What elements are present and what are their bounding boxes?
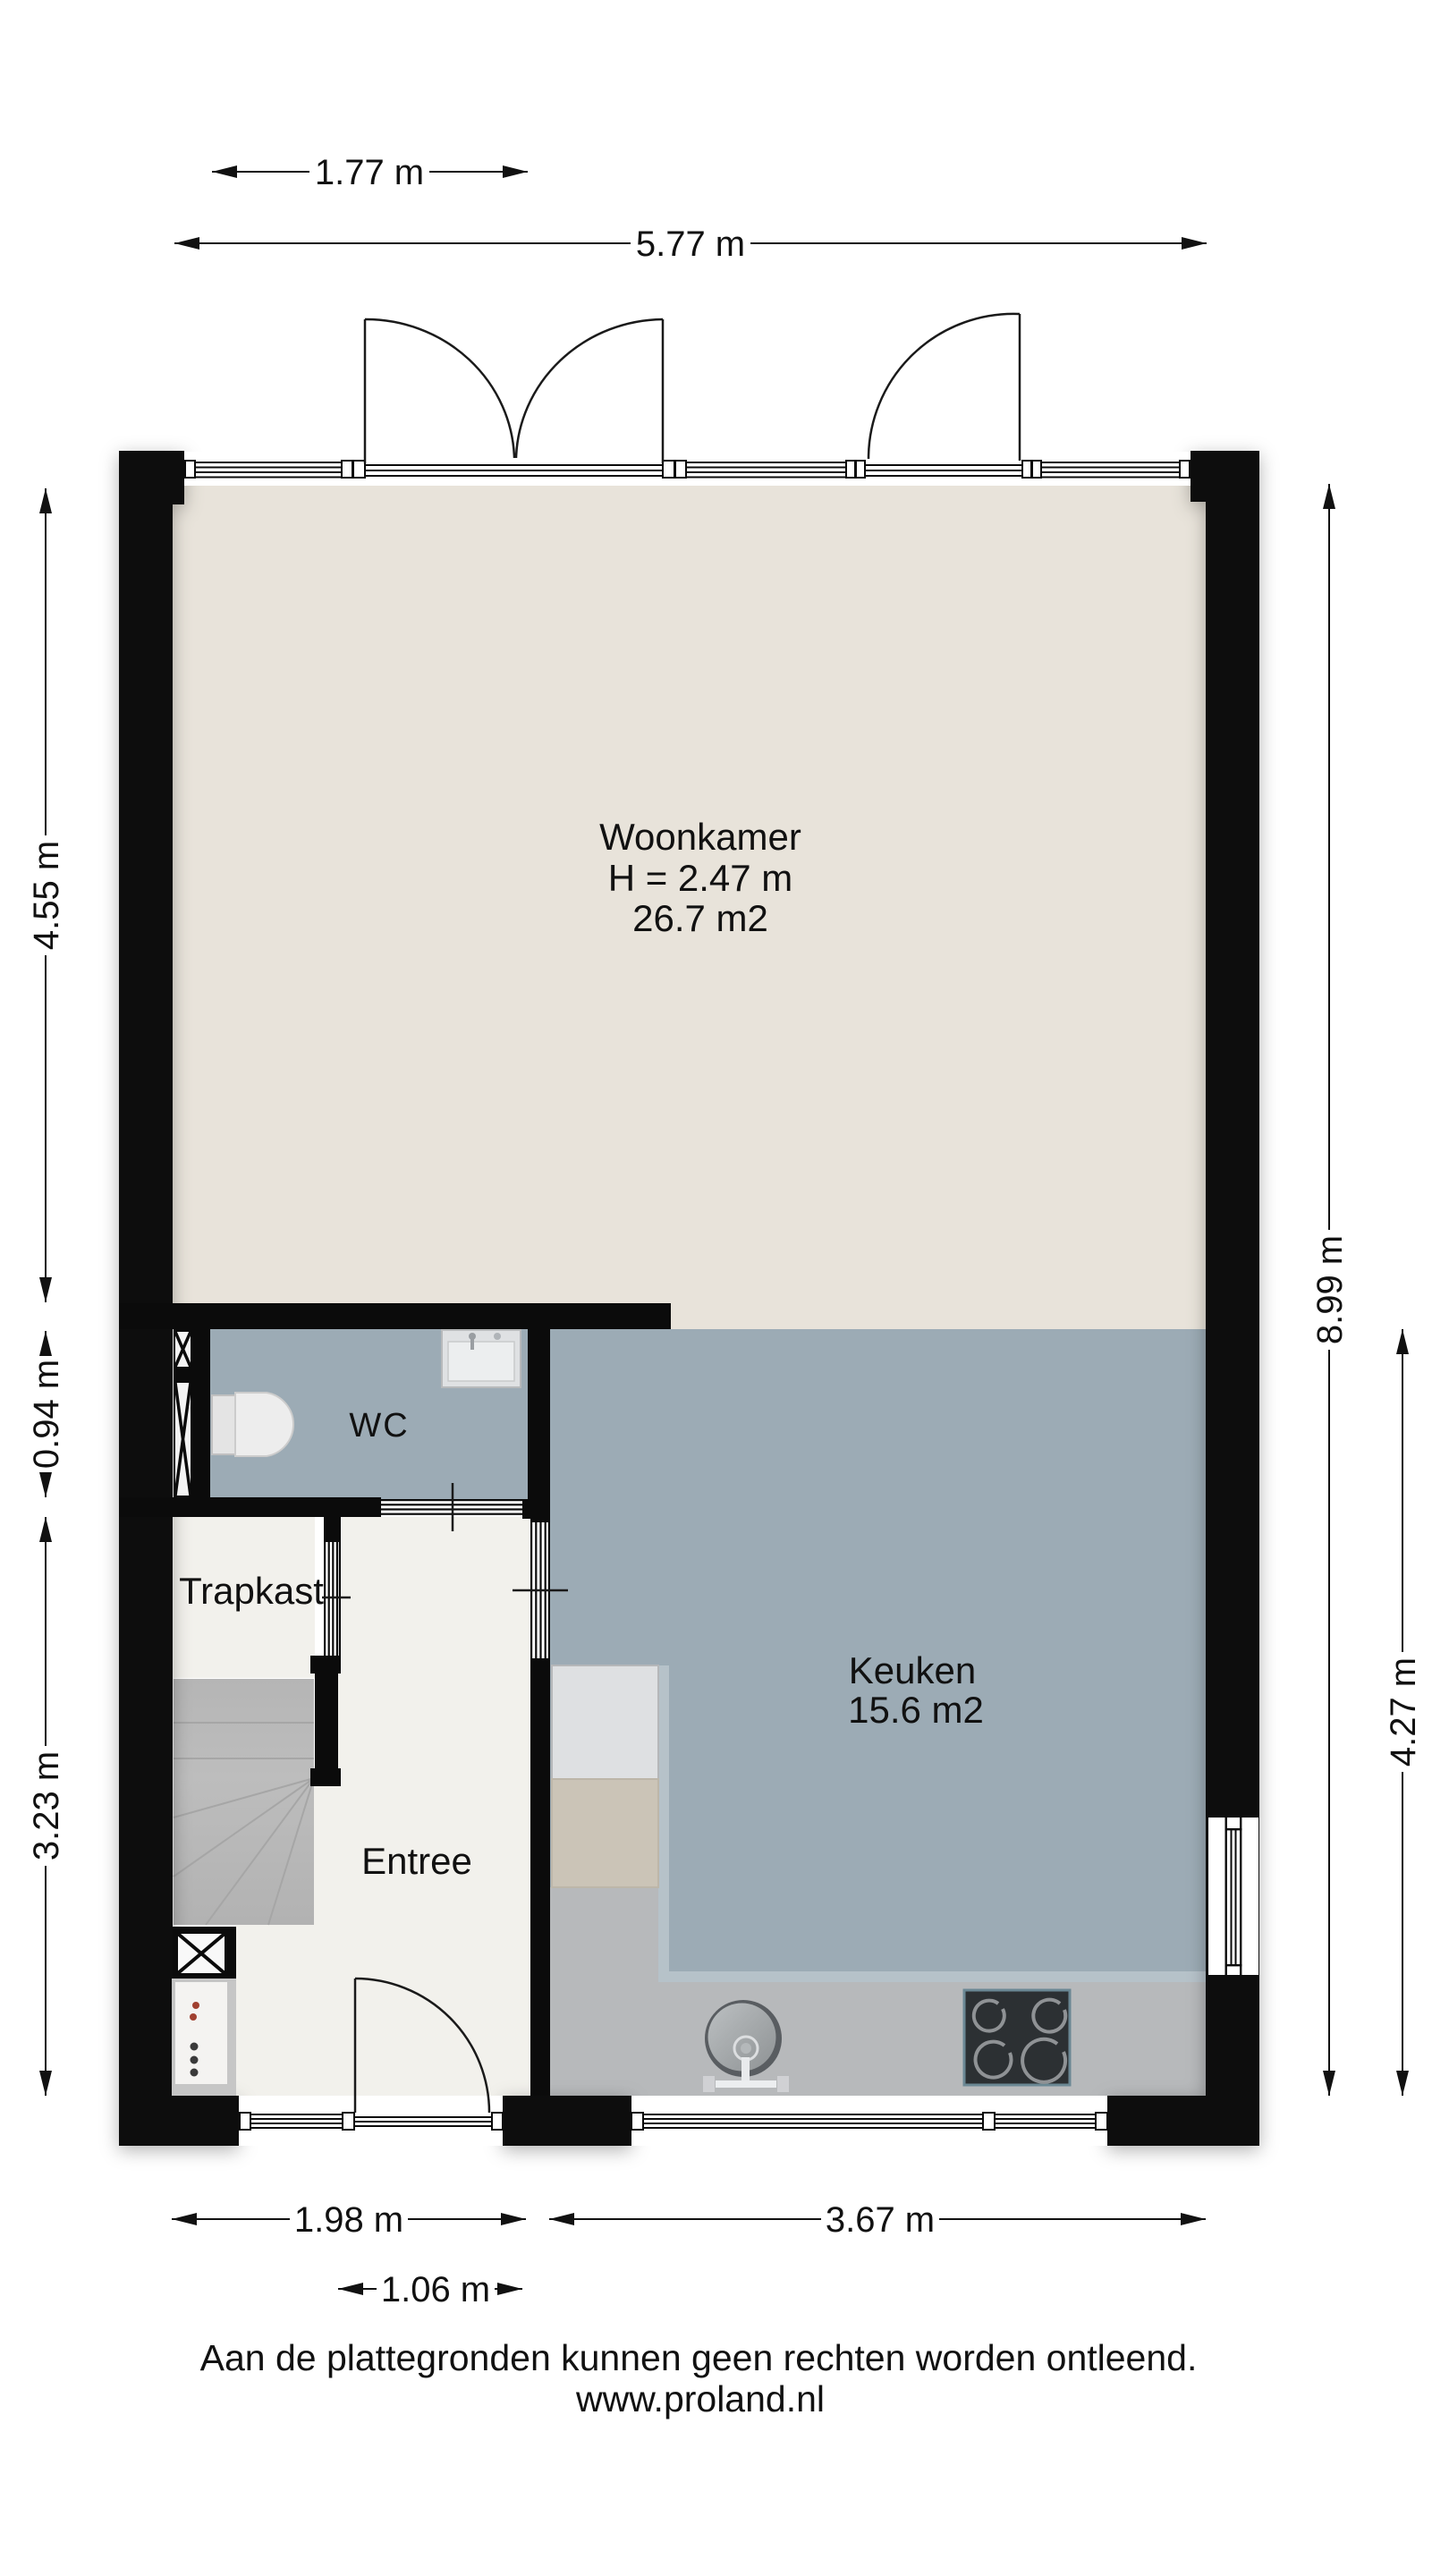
svg-text:26.7 m2: 26.7 m2 xyxy=(632,897,768,939)
svg-text:Keuken: Keuken xyxy=(849,1649,976,1691)
svg-text:www.proland.nl: www.proland.nl xyxy=(575,2378,825,2419)
svg-text:H = 2.47 m: H = 2.47 m xyxy=(608,857,793,899)
svg-text:3.23 m: 3.23 m xyxy=(27,1751,66,1860)
svg-text:8.99 m: 8.99 m xyxy=(1310,1235,1350,1344)
svg-text:4.55 m: 4.55 m xyxy=(27,841,66,950)
svg-text:3.67 m: 3.67 m xyxy=(826,2200,935,2240)
svg-text:0.94 m: 0.94 m xyxy=(27,1360,66,1469)
svg-text:Woonkamer: Woonkamer xyxy=(599,816,801,858)
svg-text:1.77 m: 1.77 m xyxy=(315,153,424,192)
svg-text:Entree: Entree xyxy=(361,1840,472,1882)
svg-text:15.6 m2: 15.6 m2 xyxy=(848,1689,984,1731)
svg-text:Trapkast: Trapkast xyxy=(179,1570,324,1612)
svg-text:Aan de plattegronden kunnen ge: Aan de plattegronden kunnen geen rechten… xyxy=(200,2337,1198,2378)
svg-text:4.27 m: 4.27 m xyxy=(1384,1657,1423,1767)
svg-text:1.98 m: 1.98 m xyxy=(294,2200,403,2240)
svg-text:WC: WC xyxy=(349,1407,409,1445)
svg-text:5.77 m: 5.77 m xyxy=(636,225,745,264)
svg-text:1.06 m: 1.06 m xyxy=(381,2270,490,2309)
